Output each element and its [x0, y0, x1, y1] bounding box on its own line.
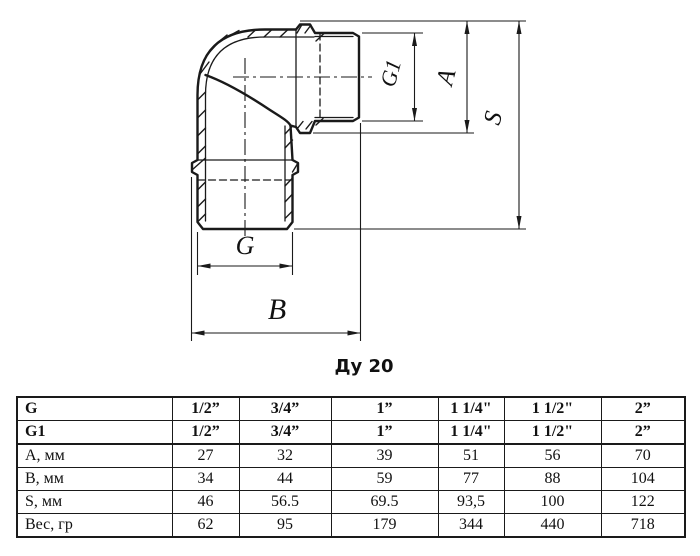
- value-cell: 1/2”: [172, 421, 239, 445]
- table-row: Вес, гр6295179344440718: [17, 514, 685, 538]
- row-label: Вес, гр: [17, 514, 172, 538]
- drawing-caption: Ду 20: [334, 356, 393, 377]
- value-cell: 34: [172, 468, 239, 491]
- row-label: А, мм: [17, 444, 172, 468]
- value-cell: 27: [172, 444, 239, 468]
- value-cell: 70: [601, 444, 685, 468]
- row-label: S, мм: [17, 491, 172, 514]
- value-cell: 3/4”: [239, 421, 331, 445]
- value-cell: 44: [239, 468, 331, 491]
- dim-label-a: A: [431, 66, 462, 90]
- spec-table: G1/2”3/4”1”1 1/4"1 1/2"2”G11/2”3/4”1”1 1…: [16, 396, 686, 538]
- value-cell: 440: [504, 514, 601, 538]
- table-row: А, мм273239515670: [17, 444, 685, 468]
- dim-label-b: B: [268, 293, 286, 326]
- value-cell: 100: [504, 491, 601, 514]
- value-cell: 32: [239, 444, 331, 468]
- value-cell: 1 1/2": [504, 397, 601, 421]
- value-cell: 62: [172, 514, 239, 538]
- table-row: S, мм4656.569.593,5100122: [17, 491, 685, 514]
- value-cell: 88: [504, 468, 601, 491]
- value-cell: 1 1/4": [438, 397, 504, 421]
- technical-drawing: G1 A S G B Ду 20: [0, 0, 700, 392]
- bore-curve: [206, 75, 291, 126]
- value-cell: 104: [601, 468, 685, 491]
- spec-table-body: G1/2”3/4”1”1 1/4"1 1/2"2”G11/2”3/4”1”1 1…: [17, 397, 685, 537]
- value-cell: 3/4”: [239, 397, 331, 421]
- value-cell: 51: [438, 444, 504, 468]
- dimension-arrows: [192, 21, 522, 336]
- value-cell: 56: [504, 444, 601, 468]
- value-cell: 122: [601, 491, 685, 514]
- value-cell: 56.5: [239, 491, 331, 514]
- value-cell: 59: [331, 468, 438, 491]
- table-row: G11/2”3/4”1”1 1/4"1 1/2"2”: [17, 421, 685, 445]
- row-label: G: [17, 397, 172, 421]
- value-cell: 69.5: [331, 491, 438, 514]
- value-cell: 46: [172, 491, 239, 514]
- table-row: G1/2”3/4”1”1 1/4"1 1/2"2”: [17, 397, 685, 421]
- value-cell: 344: [438, 514, 504, 538]
- row-label: G1: [17, 421, 172, 445]
- dim-label-s: S: [479, 108, 508, 128]
- value-cell: 179: [331, 514, 438, 538]
- value-cell: 95: [239, 514, 331, 538]
- value-cell: 1/2”: [172, 397, 239, 421]
- value-cell: 2”: [601, 421, 685, 445]
- value-cell: 2”: [601, 397, 685, 421]
- inner-lines: [198, 30, 354, 222]
- centerlines: [233, 58, 372, 237]
- row-label: В, мм: [17, 468, 172, 491]
- value-cell: 1”: [331, 421, 438, 445]
- value-cell: 1 1/2": [504, 421, 601, 445]
- value-cell: 1”: [331, 397, 438, 421]
- page: G1 A S G B Ду 20 G1/2”3/4”1”1 1/4"1 1/2"…: [0, 0, 700, 556]
- value-cell: 718: [601, 514, 685, 538]
- value-cell: 77: [438, 468, 504, 491]
- value-cell: 39: [331, 444, 438, 468]
- hatching: [192, 25, 324, 222]
- inner-wall-curve: [206, 37, 315, 95]
- table-row: В, мм3444597788104: [17, 468, 685, 491]
- value-cell: 93,5: [438, 491, 504, 514]
- dim-label-g: G: [236, 231, 255, 260]
- dim-label-g1: G1: [375, 57, 406, 89]
- value-cell: 1 1/4": [438, 421, 504, 445]
